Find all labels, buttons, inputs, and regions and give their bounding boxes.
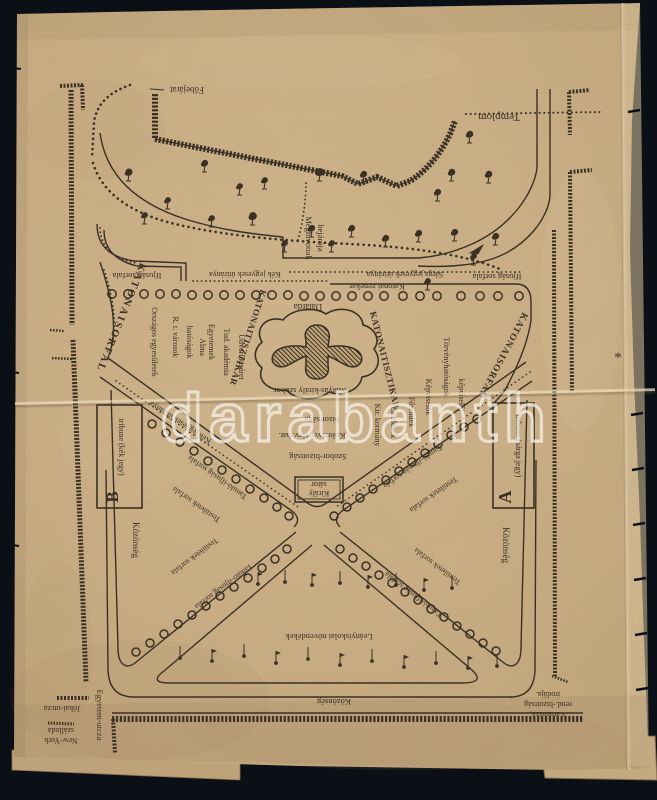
svg-text:Király: Király xyxy=(309,489,329,498)
svg-text:Tud. akadémia: Tud. akadémia xyxy=(222,328,231,376)
svg-text:darabanth: darabanth xyxy=(161,380,553,456)
svg-text:Országos egyesületek: Országos egyesületek xyxy=(150,307,159,377)
svg-text:Ifjuság sorfala: Ifjuság sorfala xyxy=(472,272,521,282)
svg-text:Alma: Alma xyxy=(198,338,207,356)
svg-text:Városháza,: Városháza, xyxy=(530,710,566,719)
svg-text:Katonai zenekar: Katonai zenekar xyxy=(349,282,405,292)
svg-text:Egyetemek: Egyetemek xyxy=(207,324,216,360)
svg-text:*: * xyxy=(614,350,622,366)
svg-text:A: A xyxy=(495,491,515,504)
svg-text:szálloda: szálloda xyxy=(47,726,74,735)
svg-text:Meghivottak: Meghivottak xyxy=(304,216,314,260)
svg-text:R. t. városok: R. t. városok xyxy=(171,317,180,358)
svg-text:hatóságok: hatóságok xyxy=(185,326,194,358)
svg-text:Dalárda: Dalárda xyxy=(294,302,322,312)
svg-text:Közönség: Közönség xyxy=(501,527,511,563)
svg-text:Jókai-utcza: Jókai-utcza xyxy=(43,704,80,713)
svg-text:irodája.: irodája. xyxy=(536,690,560,699)
svg-text:rend.-bizottság: rend.-bizottság xyxy=(524,700,572,709)
svg-text:Egyetem-utcza: Egyetem-utcza xyxy=(95,690,105,741)
svg-text:New-York: New-York xyxy=(44,736,77,745)
svg-text:Templom: Templom xyxy=(478,111,520,123)
svg-text:bejárója: bejárója xyxy=(316,224,326,252)
svg-text:Udvari kiséret: Udvari kiséret xyxy=(237,334,246,380)
svg-text:Sárga jegyesek útiránya: Sárga jegyesek útiránya xyxy=(366,270,443,279)
svg-text:Leányiskolai növendékek: Leányiskolai növendékek xyxy=(285,632,373,642)
svg-text:B: B xyxy=(103,491,122,502)
svg-text:Közönség: Közönség xyxy=(316,697,351,707)
svg-text:Közönség: Közönség xyxy=(131,522,141,558)
svg-text:Kék jegyesek útiránya: Kék jegyesek útiránya xyxy=(209,270,281,279)
svg-text:tribune (kék jegy): tribune (kék jegy) xyxy=(117,418,126,476)
svg-text:Főbejárat: Főbejárat xyxy=(170,85,204,95)
svg-text:sátor: sátor xyxy=(311,480,327,489)
